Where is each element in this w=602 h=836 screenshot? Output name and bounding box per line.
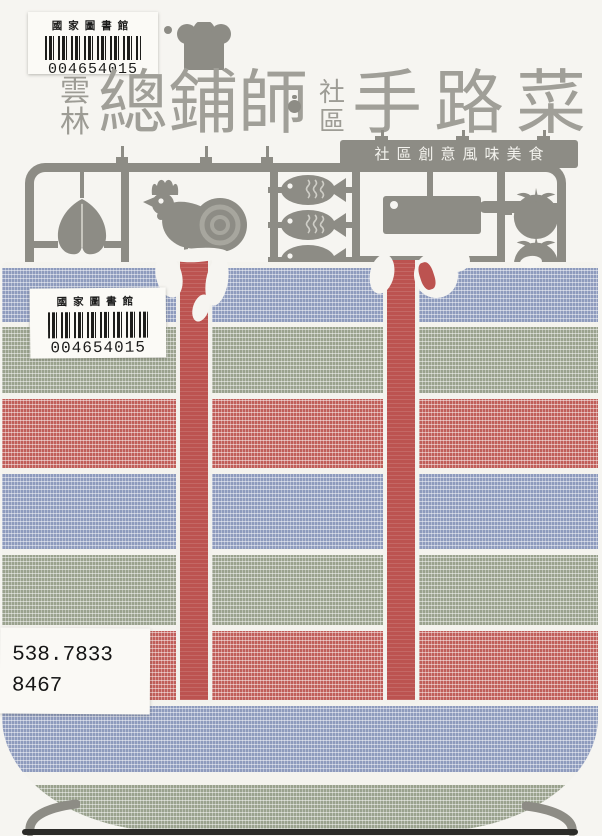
call-number-line2: 8467	[12, 671, 150, 703]
title-right: 手路菜	[352, 64, 598, 142]
community-stacked: 社 區	[314, 78, 350, 136]
bag-stripe-green	[2, 555, 598, 625]
bag-strap-left	[176, 260, 212, 704]
dot-mark	[164, 26, 172, 34]
fish-icon	[268, 172, 356, 208]
fish-icon	[268, 207, 356, 243]
pork-cut-icon	[55, 196, 109, 258]
bag-stripe-blue	[2, 706, 598, 772]
sprue-bar	[121, 172, 129, 262]
title-left: 總鋪師	[98, 64, 308, 142]
sprue-bar	[497, 172, 505, 262]
region-char-2: 林	[56, 107, 94, 138]
library-name: 國家圖書館	[28, 12, 158, 33]
cleaver-icon	[383, 196, 481, 234]
library-name: 國家圖書館	[30, 287, 166, 309]
library-barcode-label-bag: 國家圖書館 004654015	[30, 287, 167, 358]
sprue-stem	[427, 172, 433, 198]
bag-strap-right	[383, 260, 419, 704]
bag-stripe-green	[2, 785, 598, 832]
call-number-label: 538.7833 8467	[0, 627, 150, 714]
barcode	[48, 312, 148, 339]
scan-edge-shadow	[22, 829, 578, 835]
community-char-1: 社	[314, 78, 350, 107]
bag-stripe-blue	[2, 474, 598, 549]
sprue-stem	[80, 172, 84, 198]
cleaver-hole	[390, 201, 398, 209]
bag-stripe-red	[2, 399, 598, 468]
separator-dot-icon	[288, 100, 301, 113]
region-char-1: 雲	[56, 76, 94, 107]
separator-dot-knob	[292, 95, 297, 99]
region-name-stacked: 雲 林	[56, 76, 94, 138]
barcode-number: 004654015	[30, 338, 166, 357]
community-char-2: 區	[314, 107, 350, 136]
call-number-line1: 538.7833	[12, 640, 150, 672]
barcode	[45, 36, 141, 60]
book-cover: 國家圖書館 004654015 雲 林 總鋪師 社 區 手路菜 社區創意風味美食	[0, 0, 602, 836]
tomato-icon	[509, 186, 563, 240]
